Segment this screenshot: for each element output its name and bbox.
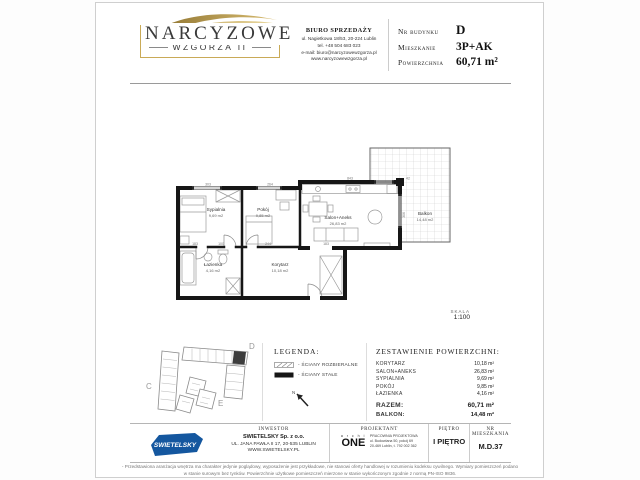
room-area-sypialnia: 9,69 m2 xyxy=(209,213,224,218)
dim-label: 42 xyxy=(406,177,410,181)
removable-wall-swatch-icon xyxy=(274,362,294,368)
brand-logo: NARCYZOWE WZGÓRZA II xyxy=(130,11,306,58)
legend-item-solid-walls: - ŚCIANY STAŁE xyxy=(274,372,364,378)
floor-label: PIĘTRO xyxy=(429,427,469,432)
furniture xyxy=(180,185,398,295)
building-value: D xyxy=(456,22,465,38)
wall-pier xyxy=(396,178,404,186)
room-area-pokoj: 9,85 m2 xyxy=(256,213,271,218)
building-label: Nr budynku xyxy=(398,27,456,36)
building-d-label: D xyxy=(249,342,255,351)
plan-sheet: NARCYZOWE WZGÓRZA II BIURO SPRZEDAŻY ul.… xyxy=(95,2,544,478)
header-rule xyxy=(130,83,511,84)
investor-block: INWESTOR SWIETELSKY Sp. z o.o. UL. JANA … xyxy=(218,424,330,462)
dim-label: 306 xyxy=(402,212,406,218)
disclaimer-text: - Przedstawiona aranżacja wnętrza ma cha… xyxy=(120,464,520,478)
highlighted-building-unit xyxy=(233,351,247,365)
dim-label: 244 xyxy=(265,242,271,246)
floor-block: PIĘTRO I PIĘTRO xyxy=(428,424,469,462)
designer-line: 20-469 Lublin, t. 792 002 362 xyxy=(370,444,418,449)
apartment-number-label: NR MIESZKANIA xyxy=(470,427,511,437)
designer-address: PRACOWNIA PROJEKTOWA ul. Budowlana 50, p… xyxy=(370,434,418,449)
brand-name: NARCYZOWE xyxy=(141,23,297,45)
site-plan: C D E xyxy=(132,339,260,424)
room-area-balkon: 14,48 m2 xyxy=(417,217,434,222)
table-row: KORYTARZ 10,18 m² xyxy=(376,361,494,367)
brand-frame: NARCYZOWE WZGÓRZA II xyxy=(140,25,280,58)
designer-label: PROJEKTANT xyxy=(330,427,428,432)
legend-item-removable-walls: - ŚCIANY ROZBIERALNE xyxy=(274,362,364,368)
row-name: SYPIALNIA xyxy=(376,376,405,382)
row-value: 9,69 m² xyxy=(477,376,494,382)
archione-logo: a r c h i ONE xyxy=(341,434,366,449)
areas-table-title: ZESTAWIENIE POWIERZCHNI: xyxy=(376,347,506,356)
sales-office-address: ul. Nagietkowa 18/53, 20-224 Lublin xyxy=(296,36,382,43)
balcony-value: 14,48 m² xyxy=(471,412,494,418)
table-row: SALON+ANEKS 26,83 m² xyxy=(376,369,494,375)
dim-label: 100 xyxy=(218,242,224,246)
building-c-label: C xyxy=(146,382,152,391)
room-label-salon: Salon+Aneks xyxy=(324,215,352,220)
total-name: RAZEM: xyxy=(376,402,403,409)
apartment-value: 3P+AK xyxy=(456,41,493,53)
apartment-row: Mieszkanie 3P+AK xyxy=(398,41,510,53)
swietelsky-logo-icon: SWIETELSKY xyxy=(137,432,211,458)
dim-label: 303 xyxy=(205,183,211,187)
row-name: KORYTARZ xyxy=(376,361,405,367)
area-value: 60,71 m² xyxy=(456,56,498,68)
walls xyxy=(178,182,400,298)
row-name: POKÓJ xyxy=(376,384,394,390)
investor-label: INWESTOR xyxy=(218,427,330,432)
sales-office-block: BIURO SPRZEDAŻY ul. Nagietkowa 18/53, 20… xyxy=(296,27,382,63)
apartment-number-block: NR MIESZKANIA M.D.37 xyxy=(469,424,511,462)
room-label-sypialnia: Sypialnia xyxy=(207,207,226,212)
svg-text:N: N xyxy=(292,390,295,395)
table-row: ŁAZIENKA 4,16 m² xyxy=(376,391,494,397)
north-arrow-icon: N xyxy=(292,389,312,409)
bottom-divider-1 xyxy=(262,343,263,421)
swietelsky-logo-text: SWIETELSKY xyxy=(154,442,197,449)
investor-logo: SWIETELSKY xyxy=(130,424,218,462)
row-value: 10,18 m² xyxy=(474,361,494,367)
dim-label: 183 xyxy=(192,242,198,246)
header-divider xyxy=(388,19,389,71)
total-value: 60,71 m² xyxy=(468,402,494,409)
solid-wall-swatch-icon xyxy=(274,372,294,378)
area-label: Powierzchnia xyxy=(398,58,456,67)
sales-office-title: BIURO SPRZEDAŻY xyxy=(296,27,382,34)
dim-label: 264 xyxy=(267,183,273,187)
legend-title: LEGENDA: xyxy=(274,347,364,356)
room-label-korytarz: Korytarz xyxy=(271,262,289,267)
table-row: SYPIALNIA 9,69 m² xyxy=(376,376,494,382)
sales-office-phone: tel. +48 504 683 023 xyxy=(296,43,382,50)
archione-logo-main: ONE xyxy=(341,438,366,449)
room-area-korytarz: 10,18 m2 xyxy=(272,268,289,273)
dim-label: 843 xyxy=(347,177,353,181)
row-name: ŁAZIENKA xyxy=(376,391,403,397)
floor-plan: Sypialnia 9,69 m2 Pokój 9,85 m2 Łazienka… xyxy=(168,98,473,333)
unit-info: Nr budynku D Mieszkanie 3P+AK Powierzchn… xyxy=(398,22,510,71)
row-value: 9,85 m² xyxy=(477,384,494,390)
dim-label: 183 xyxy=(323,242,329,246)
row-value: 4,16 m² xyxy=(477,391,494,397)
room-label-pokoj: Pokój xyxy=(257,207,269,212)
investor-web: WWW.SWIETELSKY.PL xyxy=(218,448,330,455)
balcony-outline xyxy=(370,148,450,242)
row-value: 26,83 m² xyxy=(474,369,494,375)
balcony-name: BALKON: xyxy=(376,412,405,418)
table-total-row: RAZEM: 60,71 m² xyxy=(376,402,494,409)
building-row: Nr budynku D xyxy=(398,22,510,38)
floor-value: I PIĘTRO xyxy=(429,437,469,446)
room-area-lazienka: 4,16 m2 xyxy=(206,268,221,273)
sales-office-web: www.narcyzowewzgorza.pl xyxy=(296,56,382,63)
table-row: POKÓJ 9,85 m² xyxy=(376,384,494,390)
scale-note: SKALA 1:100 xyxy=(426,309,470,321)
apartment-number-value: M.D.37 xyxy=(470,442,511,451)
apartment-label: Mieszkanie xyxy=(398,43,456,52)
room-label-lazienka: Łazienka xyxy=(204,262,223,267)
sales-office-email: e-mail: biuro@narcyzowewzgorza.pl xyxy=(296,50,382,57)
area-row: Powierzchnia 60,71 m² xyxy=(398,56,510,68)
footer: SWIETELSKY INWESTOR SWIETELSKY Sp. z o.o… xyxy=(130,423,511,463)
legend-label: - ŚCIANY ROZBIERALNE xyxy=(298,363,358,368)
row-name: SALON+ANEKS xyxy=(376,369,416,375)
investor-name: SWIETELSKY Sp. z o.o. xyxy=(218,434,330,442)
areas-table: ZESTAWIENIE POWIERZCHNI: KORYTARZ 10,18 … xyxy=(376,347,506,420)
designer-block: PROJEKTANT a r c h i ONE PRACOWNIA PROJE… xyxy=(329,424,428,462)
room-area-salon: 26,83 m2 xyxy=(330,221,347,226)
table-balcony-row: BALKON: 14,48 m² xyxy=(376,412,494,418)
room-label-balkon: Balkon xyxy=(418,211,432,216)
building-e-label: E xyxy=(218,399,223,408)
bottom-divider-2 xyxy=(366,343,367,421)
legend: LEGENDA: - ŚCIANY ROZBIERALNE - ŚCIANY S… xyxy=(274,347,364,382)
scale-value: 1:100 xyxy=(426,314,470,321)
legend-label: - ŚCIANY STAŁE xyxy=(298,373,338,378)
